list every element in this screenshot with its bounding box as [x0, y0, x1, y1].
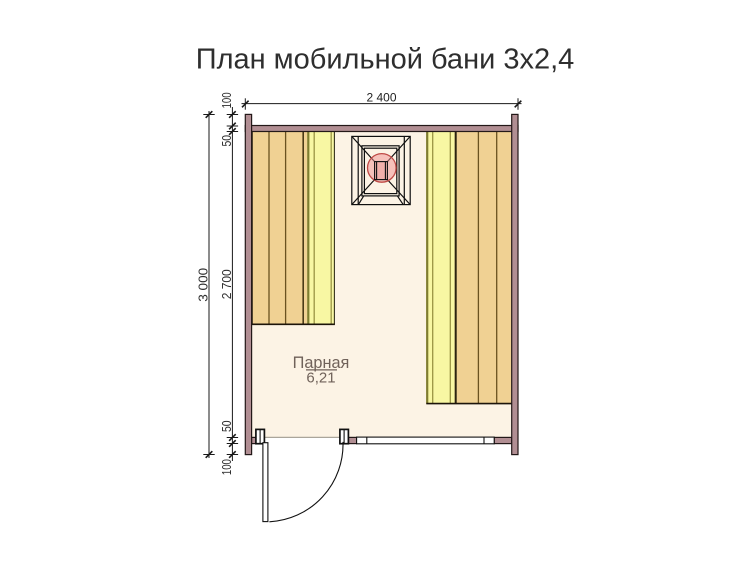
- svg-text:100: 100: [219, 459, 234, 475]
- svg-text:50: 50: [219, 420, 234, 432]
- svg-text:6,21: 6,21: [306, 370, 335, 387]
- svg-text:План мобильной бани 3х2,4: План мобильной бани 3х2,4: [196, 44, 575, 76]
- svg-text:100: 100: [219, 92, 234, 108]
- svg-text:2 700: 2 700: [219, 269, 234, 299]
- svg-text:2 400: 2 400: [367, 90, 397, 104]
- svg-text:50: 50: [219, 135, 234, 147]
- svg-text:3 000: 3 000: [196, 268, 211, 302]
